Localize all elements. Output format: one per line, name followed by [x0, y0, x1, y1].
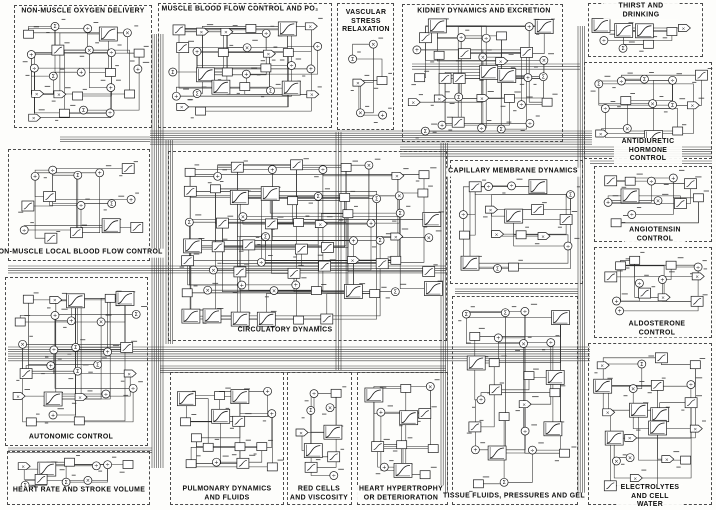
- svg-text:×: ×: [541, 234, 545, 240]
- svg-text:+: +: [369, 221, 373, 227]
- svg-text:Σ: Σ: [399, 211, 402, 217]
- svg-text:÷: ÷: [259, 260, 263, 266]
- svg-text:×: ×: [521, 341, 525, 347]
- svg-text:Σ: Σ: [53, 24, 56, 30]
- svg-text:Σ: Σ: [500, 127, 503, 133]
- svg-text:÷: ÷: [131, 386, 135, 392]
- section-title-red-cells-and-viscosity: RED CELLS AND VISCOSITY: [288, 485, 350, 502]
- section-heart-rate-and-stroke-volume: ×÷÷ΣΣ×: [7, 451, 150, 505]
- svg-text:×: ×: [351, 258, 355, 264]
- svg-text:×: ×: [394, 234, 398, 240]
- svg-text:+: +: [51, 413, 55, 419]
- svg-text:×: ×: [395, 174, 399, 180]
- section-title-antidiuretic-hormone-control: ANTIDIURETIC HORMONE CONTROL: [614, 138, 682, 164]
- svg-text:×: ×: [481, 55, 485, 61]
- svg-text:+: +: [195, 49, 199, 55]
- svg-text:×: ×: [180, 105, 184, 111]
- schematic-non-muscle-local-blood-flow-control: +÷Σ+÷Σ+÷: [9, 150, 151, 262]
- section-title-pulmonary-dynamics-and-fluids: PULMONARY DYNAMICS AND FLUIDS: [181, 485, 274, 502]
- svg-text:×: ×: [199, 29, 203, 35]
- section-title-angiotensin-control: ANGIOTENSIN CONTROL: [625, 226, 686, 243]
- section-muscle-blood-flow-control: ××÷×+××÷Σ+÷++ΣΣ××: [158, 3, 332, 128]
- svg-text:÷: ÷: [530, 448, 534, 454]
- svg-text:÷: ÷: [619, 79, 623, 85]
- svg-text:×: ×: [32, 116, 36, 122]
- svg-text:×: ×: [299, 430, 303, 436]
- svg-text:+: +: [33, 174, 37, 180]
- svg-text:Σ: Σ: [597, 82, 600, 88]
- section-title-tissue-fluids-pressures-and-gel: TISSUE FLUIDS, PRESSURES AND GEL: [441, 493, 587, 502]
- svg-text:×: ×: [656, 199, 660, 205]
- svg-text:×: ×: [241, 214, 245, 220]
- svg-text:÷: ÷: [696, 265, 700, 271]
- section-title-thirst-and-drinking: THIRST AND DRINKING: [604, 2, 679, 19]
- svg-text:÷: ÷: [509, 184, 513, 190]
- svg-text:×: ×: [86, 478, 90, 484]
- svg-text:÷: ÷: [649, 179, 653, 185]
- svg-text:÷: ÷: [22, 228, 26, 234]
- section-title-kidney-dynamics-and-excretion: KIDNEY DYNAMICS AND EXCRETION: [415, 8, 552, 17]
- svg-text:×: ×: [631, 386, 635, 392]
- svg-text:Σ: Σ: [640, 362, 643, 368]
- svg-text:×: ×: [633, 476, 637, 482]
- schematic-muscle-blood-flow-control: ××÷×+××÷Σ+÷++ΣΣ××: [159, 4, 333, 129]
- section-title-heart-hypertrophy-or-deterioration: HEART HYPERTROPHY OR DETERIORATION: [357, 485, 445, 502]
- svg-text:÷: ÷: [289, 63, 293, 69]
- svg-text:÷: ÷: [316, 44, 320, 50]
- svg-text:+: +: [129, 197, 133, 203]
- svg-text:÷: ÷: [603, 106, 607, 112]
- svg-text:Σ: Σ: [269, 89, 272, 95]
- section-circulatory-dynamics: ++÷××ΣΣ×Σ××+ΣΣ+Σ×××÷××+×+Σ: [168, 151, 447, 341]
- svg-text:×: ×: [272, 288, 276, 294]
- svg-text:÷: ÷: [528, 121, 532, 127]
- section-capillary-membrane-dynamics: ÷÷Σ÷×××÷Σ: [450, 160, 583, 284]
- svg-text:+: +: [671, 176, 675, 182]
- svg-text:Σ: Σ: [496, 266, 499, 272]
- svg-text:×: ×: [127, 371, 131, 377]
- svg-text:×: ×: [661, 295, 665, 301]
- svg-text:÷: ÷: [602, 38, 606, 44]
- section-title-non-muscle-oxygen-delivery: NON-MUSCLE OXYGEN DELIVERY: [19, 8, 146, 17]
- svg-text:Σ: Σ: [195, 91, 198, 97]
- svg-text:×: ×: [78, 395, 82, 401]
- svg-text:÷: ÷: [479, 126, 483, 132]
- schematic-non-muscle-oxygen-delivery: Σ÷×+×÷÷Σ++××+×Σ÷: [15, 6, 153, 129]
- svg-text:×: ×: [87, 48, 91, 54]
- svg-text:×: ×: [499, 59, 503, 65]
- svg-text:÷: ÷: [461, 212, 465, 218]
- svg-text:×: ×: [599, 131, 603, 137]
- svg-text:÷: ÷: [670, 78, 674, 84]
- svg-text:Σ: Σ: [171, 70, 174, 76]
- svg-text:×: ×: [358, 111, 362, 117]
- svg-text:×: ×: [310, 92, 314, 98]
- svg-text:Σ: Σ: [502, 480, 505, 486]
- svg-text:+: +: [136, 67, 140, 73]
- svg-text:×: ×: [206, 288, 210, 294]
- svg-text:+: +: [606, 200, 610, 206]
- svg-text:Σ: Σ: [569, 192, 572, 198]
- svg-text:+: +: [380, 113, 384, 119]
- svg-text:+: +: [415, 48, 419, 54]
- svg-text:÷: ÷: [321, 167, 325, 173]
- svg-text:+: +: [174, 94, 178, 100]
- svg-text:×: ×: [371, 42, 375, 48]
- section-non-muscle-local-blood-flow-control: +÷Σ+÷Σ+÷: [8, 149, 150, 261]
- svg-text:+: +: [69, 319, 73, 325]
- svg-text:×: ×: [245, 46, 249, 52]
- svg-text:+: +: [109, 85, 113, 91]
- svg-text:Σ: Σ: [378, 238, 381, 244]
- svg-text:×: ×: [53, 298, 57, 304]
- svg-text:÷: ÷: [86, 26, 90, 32]
- svg-text:+: +: [214, 460, 218, 466]
- svg-text:÷: ÷: [523, 429, 527, 435]
- section-tissue-fluids-pressures-and-gel: ΣΣ÷+×÷÷×÷+÷Σ: [452, 296, 578, 505]
- svg-text:×: ×: [681, 26, 685, 32]
- schematic-electrolytes-and-cell-water: ×Σ×÷×××××××: [589, 344, 713, 506]
- svg-text:÷: ÷: [519, 102, 523, 108]
- svg-text:Σ: Σ: [264, 234, 267, 240]
- svg-text:×: ×: [628, 456, 632, 462]
- svg-text:×: ×: [16, 394, 20, 400]
- svg-text:×: ×: [427, 236, 431, 242]
- svg-text:+: +: [105, 350, 109, 356]
- svg-text:÷: ÷: [486, 184, 490, 190]
- svg-text:×: ×: [600, 363, 604, 369]
- svg-text:÷: ÷: [104, 392, 108, 398]
- svg-text:+: +: [216, 174, 220, 180]
- svg-text:×: ×: [35, 92, 39, 98]
- svg-text:Σ: Σ: [110, 201, 113, 207]
- svg-text:÷: ÷: [459, 35, 463, 41]
- svg-text:Σ: Σ: [82, 108, 85, 114]
- svg-text:Σ: Σ: [671, 103, 674, 109]
- section-title-electrolytes-and-cell-water: ELECTROLYTES AND CELL WATER: [617, 484, 683, 510]
- svg-text:+: +: [379, 410, 383, 416]
- svg-text:Σ: Σ: [135, 312, 138, 318]
- svg-text:×: ×: [397, 194, 401, 200]
- svg-text:×: ×: [480, 96, 484, 102]
- svg-text:×: ×: [318, 222, 322, 228]
- svg-text:×: ×: [695, 274, 699, 280]
- section-kidney-dynamics-and-excretion: ÷÷++×××+Σ××Σ×÷Σ+÷Σ÷: [402, 4, 563, 142]
- svg-text:×: ×: [665, 457, 669, 463]
- svg-text:Σ: Σ: [643, 77, 646, 83]
- svg-text:×: ×: [266, 52, 270, 58]
- svg-text:+: +: [53, 313, 57, 319]
- svg-text:+: +: [496, 336, 500, 342]
- svg-text:+: +: [614, 299, 618, 305]
- diagram-canvas: Σ÷×+×÷÷Σ++××+×Σ÷××÷×+××÷Σ+÷++ΣΣ××Σ×××+÷÷…: [0, 0, 716, 510]
- svg-text:+: +: [617, 309, 621, 315]
- svg-text:÷: ÷: [479, 398, 483, 404]
- svg-text:÷: ÷: [484, 36, 488, 42]
- svg-text:×: ×: [356, 80, 360, 86]
- svg-text:÷: ÷: [105, 463, 109, 469]
- svg-text:×: ×: [328, 406, 332, 412]
- svg-text:×: ×: [125, 31, 129, 37]
- svg-text:×: ×: [693, 426, 697, 432]
- svg-text:÷: ÷: [637, 281, 641, 287]
- svg-text:Σ: Σ: [375, 197, 378, 203]
- svg-text:Σ: Σ: [309, 408, 312, 414]
- svg-text:Σ: Σ: [188, 220, 191, 226]
- svg-text:×: ×: [625, 126, 629, 132]
- schematic-autonomic-control: ×++×Σ×÷Σ++ΣΣ×××÷÷+: [6, 278, 149, 447]
- svg-text:×: ×: [428, 384, 432, 390]
- section-title-non-muscle-local-blood-flow-control: NON-MUSCLE LOCAL BLOOD FLOW CONTROL: [0, 249, 165, 258]
- svg-text:×: ×: [606, 410, 610, 416]
- svg-text:Σ: Σ: [52, 74, 55, 80]
- schematic-kidney-dynamics-and-excretion: ÷÷++×××+Σ××Σ×÷Σ+÷Σ÷: [403, 5, 564, 143]
- svg-text:÷: ÷: [79, 203, 83, 209]
- svg-text:×: ×: [690, 103, 694, 109]
- svg-text:÷: ÷: [566, 244, 570, 250]
- section-title-heart-rate-and-stroke-volume: HEART RATE AND STROKE VOLUME: [11, 487, 147, 496]
- svg-text:÷: ÷: [630, 212, 634, 218]
- svg-text:+: +: [29, 52, 33, 58]
- svg-text:÷: ÷: [52, 348, 56, 354]
- schematic-circulatory-dynamics: ++÷××ΣΣ×Σ××+ΣΣ+Σ×××÷××+×+Σ: [169, 152, 448, 342]
- svg-text:+: +: [49, 363, 53, 369]
- svg-text:÷: ÷: [332, 473, 336, 479]
- section-title-vascular-stress-relaxation: VASCULAR STRESS RELAXATION: [340, 9, 392, 35]
- svg-text:+: +: [660, 277, 664, 283]
- svg-text:Σ: Σ: [621, 46, 624, 52]
- svg-text:Σ: Σ: [74, 345, 77, 351]
- svg-text:+: +: [526, 75, 530, 81]
- svg-text:Σ: Σ: [351, 57, 354, 63]
- section-autonomic-control: ×++×Σ×÷Σ++ΣΣ×××÷÷+: [5, 277, 148, 446]
- schematic-capillary-membrane-dynamics: ÷÷Σ÷×××÷Σ: [451, 161, 584, 285]
- svg-text:×: ×: [20, 342, 24, 348]
- svg-text:×: ×: [21, 464, 25, 470]
- svg-text:+: +: [265, 389, 269, 395]
- svg-text:+: +: [98, 171, 102, 177]
- svg-text:×: ×: [367, 163, 371, 169]
- svg-text:+: +: [382, 465, 386, 471]
- svg-text:×: ×: [437, 96, 441, 102]
- section-title-muscle-blood-flow-control: MUSCLE BLOOD FLOW CONTROL AND PO₂: [159, 6, 320, 15]
- section-electrolytes-and-cell-water: ×Σ×÷×××××××: [588, 343, 712, 505]
- svg-text:×: ×: [308, 24, 312, 30]
- svg-text:Σ: Σ: [457, 95, 460, 101]
- svg-text:×: ×: [411, 100, 415, 106]
- svg-text:Σ: Σ: [465, 312, 468, 318]
- svg-text:×: ×: [495, 232, 499, 238]
- svg-text:×: ×: [628, 436, 632, 442]
- svg-text:÷: ÷: [32, 66, 36, 72]
- svg-text:Σ: Σ: [76, 369, 79, 375]
- svg-text:÷: ÷: [689, 382, 693, 388]
- svg-text:÷: ÷: [312, 391, 316, 397]
- svg-text:÷: ÷: [109, 51, 113, 57]
- svg-text:+: +: [527, 24, 531, 30]
- svg-text:×: ×: [542, 58, 546, 64]
- svg-text:Σ: Σ: [96, 363, 99, 369]
- schematic-tissue-fluids-pressures-and-gel: ΣΣ÷+×÷÷×÷+÷Σ: [453, 297, 579, 506]
- svg-text:+: +: [309, 67, 313, 73]
- section-title-aldosterone-control: ALDOSTERONE CONTROL: [627, 320, 688, 337]
- svg-text:÷: ÷: [108, 111, 112, 117]
- section-non-muscle-oxygen-delivery: Σ÷×+×÷÷Σ++××+×Σ÷: [14, 5, 152, 128]
- svg-text:×: ×: [211, 268, 215, 274]
- svg-text:+: +: [244, 72, 248, 78]
- svg-text:÷: ÷: [549, 340, 553, 346]
- svg-text:+: +: [351, 239, 355, 245]
- svg-text:Σ: Σ: [504, 311, 507, 317]
- schematic-heart-rate-and-stroke-volume: ×÷÷ΣΣ×: [8, 452, 151, 506]
- svg-text:+: +: [270, 167, 274, 173]
- svg-text:+: +: [294, 283, 298, 289]
- svg-text:×: ×: [522, 402, 526, 408]
- svg-text:+: +: [79, 70, 83, 76]
- svg-text:×: ×: [99, 320, 103, 326]
- svg-text:+: +: [270, 411, 274, 417]
- section-title-circulatory-dynamics: CIRCULATORY DYNAMICS: [236, 327, 335, 336]
- svg-text:Σ: Σ: [394, 290, 397, 296]
- svg-text:÷: ÷: [94, 464, 98, 470]
- svg-text:÷: ÷: [264, 31, 268, 37]
- svg-text:×: ×: [57, 92, 61, 98]
- svg-text:+: +: [440, 123, 444, 129]
- svg-text:×: ×: [614, 459, 618, 465]
- svg-text:÷: ÷: [51, 168, 55, 174]
- svg-text:+: +: [240, 283, 244, 289]
- svg-text:×: ×: [224, 30, 228, 36]
- svg-text:÷: ÷: [523, 309, 527, 315]
- section-title-autonomic-control: AUTONOMIC CONTROL: [27, 434, 115, 443]
- svg-text:Σ: Σ: [64, 480, 67, 486]
- section-title-capillary-membrane-dynamics: CAPILLARY MEMBRANE DYNAMICS: [446, 168, 580, 177]
- svg-text:×: ×: [489, 207, 493, 213]
- svg-text:Σ: Σ: [542, 75, 545, 81]
- svg-text:Σ: Σ: [76, 173, 79, 179]
- svg-text:Σ: Σ: [317, 194, 320, 200]
- svg-text:Σ: Σ: [424, 129, 427, 135]
- svg-text:×: ×: [650, 101, 654, 107]
- svg-text:+: +: [473, 448, 477, 454]
